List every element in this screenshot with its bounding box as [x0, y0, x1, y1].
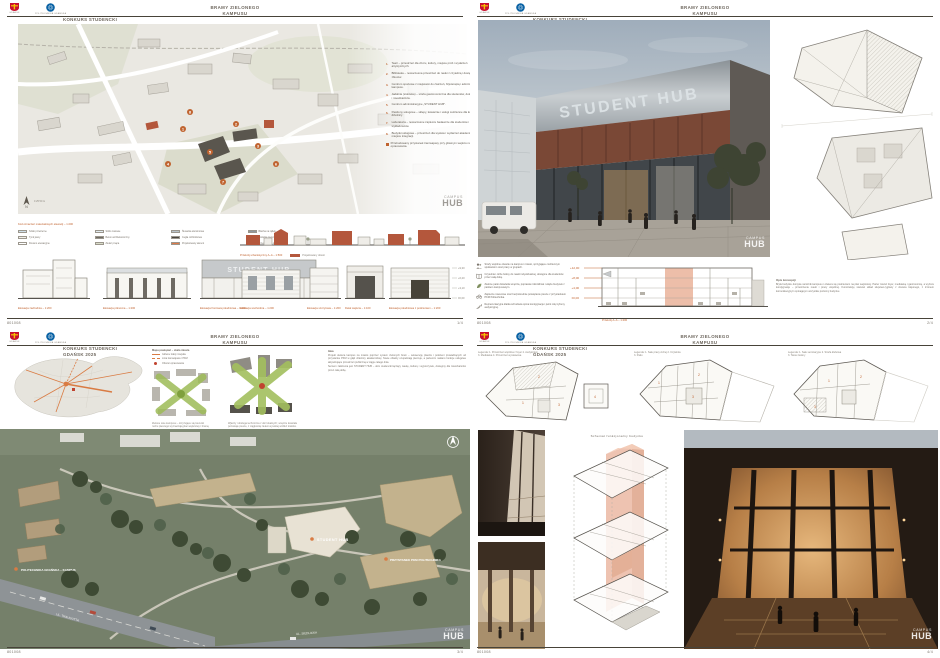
program-list: 1.Teatr – przestrzeń dla chóru, kultury,… [386, 62, 470, 152]
svg-text:N: N [25, 205, 28, 208]
politechnika-emblem-icon [46, 3, 55, 12]
north-arrow-icon: N [22, 196, 31, 208]
board-footer: 801008 4/4 [477, 647, 933, 656]
floor-plan-drawing: 1234 [478, 358, 628, 424]
board-1-masterplan: GDAŃSK POLITECHNIKA GDAŃSKA KONKURS STUD… [0, 0, 470, 329]
entry-code: 801008 [477, 321, 491, 325]
program-item: 5.Centrum administracyjne „STUDENT HUB”. [386, 103, 470, 107]
board-header: GDAŃSK POLITECHNIKA GDAŃSKA KONKURS STUD… [477, 2, 933, 17]
aerial-label-student-hub: STUDENT HUB [317, 538, 349, 542]
page-number: 2/4 [927, 321, 933, 325]
svg-text:±0,00: ±0,00 [572, 296, 580, 300]
svg-text:1: 1 [522, 401, 524, 405]
campus-hub-watermark: CAMPUS HUB [443, 629, 464, 641]
board-3-analyses-aerial: GDAŃSK POLITECHNIKA GDAŃSKA KONKURS STUD… [0, 329, 470, 658]
concept-annotations: Strefy wspólne otwarte na kampus i miast… [476, 263, 568, 312]
material-swatch [95, 236, 104, 239]
competition-boards-sheet: GDAŃSK POLITECHNIKA GDAŃSKA KONKURS STUD… [0, 0, 940, 658]
diagram-caption: Wjazdy i obsługa techniczna z ulic lokal… [228, 422, 300, 429]
annotation-item: Zielone patio doświetla wnętrza, poprawi… [476, 283, 568, 290]
board-footer: 801008 2/4 [477, 318, 933, 327]
van [482, 202, 536, 234]
elevation-gable: Elewacja szczytowa – 1:200 [307, 262, 341, 310]
aerial-render: STUDENT HUB PRZYSTANEK PKM POLITECHNIKA … [0, 429, 470, 649]
floor-plan-ground: Legenda: 1. Przestrzeń wspólna z foyer 2… [478, 351, 628, 437]
elevation-drawing [389, 262, 451, 302]
functional-scheme: Schemat funkcjonalny budynku [550, 430, 684, 649]
users-icon [476, 263, 482, 269]
siteplan-tools: N 0 25 50 m [22, 196, 45, 208]
board-title: BRAMY ZIELONEGOKAMPUSU [597, 334, 813, 346]
board-title: BRAMY ZIELONEGO KAMPUSU [127, 5, 343, 17]
material-swatch [171, 242, 180, 245]
campus-hub-watermark: CAMPUS HUB [442, 196, 463, 208]
floor-plan-level2: Legenda: 1. Sale seminaryjne 2. Strefa k… [788, 351, 938, 437]
circulation-drawing [228, 355, 296, 417]
material-swatch [18, 236, 27, 239]
floor-plan-drawing: 123 [634, 358, 784, 424]
material-swatch [171, 236, 180, 239]
politechnika-gdanska-logo: POLITECHNIKA GDAŃSKA [505, 3, 536, 15]
gdansk-crest-icon [9, 3, 20, 11]
politechnika-logo-label: POLITECHNIKA GDAŃSKA [35, 13, 66, 15]
interior-render-lobby [478, 542, 545, 649]
courtyard-render-image [684, 430, 938, 649]
svg-text:+4,00: +4,00 [572, 286, 580, 290]
board-footer: 801008 3/4 [7, 647, 463, 656]
city-connections-map [8, 350, 148, 429]
legend-item: Zieleń pnąca [95, 240, 166, 246]
hero-render: STUDENT HUB [478, 20, 770, 257]
gdansk-crest-icon [479, 332, 490, 340]
map-legend: Mapa powiązań – skala miasta Główne trak… [152, 349, 222, 365]
program-item-highlight: Przebudowany przystanek tramwajowy przy … [386, 142, 470, 149]
board-header: GDAŃSK POLITECHNIKA GDAŃSKA KONKURS STUD… [7, 2, 463, 17]
svg-text:+9,30: +9,30 [458, 266, 465, 270]
campus-hub-watermark: CAMPUS HUB [911, 629, 932, 641]
svg-text:1: 1 [828, 379, 830, 383]
program-item: 1.Teatr – przestrzeń dla chóru, kultury,… [386, 62, 470, 69]
building-section: +12,00 +8,00 +4,00 ±0,00 Przekrój A–A – … [570, 260, 768, 322]
section-legend-chip: Projektowany obiekt [290, 254, 324, 257]
legend-item: Drewno elewacyjne [18, 240, 89, 246]
elevation-drawing [18, 254, 90, 302]
idea-paragraph-1: Projekt otwiera kampus na miasto poprzez… [328, 354, 466, 364]
roof-plan [772, 18, 938, 260]
elevation-drawing [345, 262, 385, 302]
material-swatch [18, 230, 27, 233]
elevation-drawing [240, 262, 302, 302]
description-title: Opis koncepcji [776, 278, 934, 282]
aerial-label-pkm: PRZYSTANEK PKM POLITECHNIKA [390, 558, 442, 562]
legend-item: Projektowany akcent [171, 240, 242, 246]
idea-text-block: Idea Projekt otwiera kampus na miasto po… [328, 349, 466, 372]
leaf-icon [476, 283, 482, 289]
board-title: BRAMY ZIELONEGOKAMPUSU [597, 5, 813, 17]
politechnika-emblem-icon [516, 3, 525, 12]
gdansk-city-logo: GDAŃSK [479, 3, 490, 14]
svg-text:+6,20: +6,20 [458, 276, 465, 280]
annotation-item: Reprezentacyjna klatka schodowa spina ko… [476, 303, 568, 310]
politechnika-gdanska-logo: POLITECHNIKA GDAŃSKA [35, 332, 66, 344]
svg-text:+12,00: +12,00 [570, 266, 580, 270]
courtyard-render-dusk: CAMPUS HUB [684, 430, 938, 649]
city-map-drawing [8, 350, 148, 424]
circulation-diagram: Wjazdy i obsługa techniczna z ulic lokal… [228, 355, 300, 429]
page-number: 4/4 [927, 650, 933, 654]
site-plan: 1 2 3 4 5 6 7 8 1.Teatr – przestrzeń dla… [18, 24, 467, 214]
exploded-axonometric-drawing [550, 440, 684, 640]
svg-text:3: 3 [814, 405, 816, 409]
green-axes-drawing [152, 369, 210, 417]
elevation-east: Elewacja wschodnia – 1:200 [240, 262, 302, 310]
idea-title: Idea [328, 349, 466, 353]
stairs-icon [476, 303, 482, 309]
annotation-item: Strefy wspólne otwarte na kampus i miast… [476, 263, 568, 270]
annotation-item: Czytelnia i ciche boksy do nauki indywid… [476, 273, 568, 280]
program-item: 3.Centrum sportowe z miejscami do ćwicze… [386, 83, 470, 90]
elevation-south: Elewacja południowa z podcieniem – 1:200 [389, 262, 451, 310]
program-item: 2.Biblioteka – nowoczesna przestrzeń do … [386, 72, 470, 79]
map-legend-title: Mapa powiązań – skala miasta [152, 349, 222, 352]
svg-text:±0,00: ±0,00 [458, 296, 465, 300]
elevation-drawing [307, 262, 341, 302]
elevation-west: Elewacja zachodnia – 1:200 [18, 254, 90, 310]
map-legend-item: Linia tramwajowa / PKM [152, 357, 222, 360]
elevation-entry-detail: Detal wejścia – 1:100 [345, 262, 385, 310]
elevation-north: Elewacja północna – 1:200 [103, 254, 191, 310]
gdansk-city-logo: GDAŃSK [9, 332, 20, 343]
bike-icon [476, 293, 482, 299]
svg-text:+8,00: +8,00 [572, 276, 580, 280]
campus-hub-watermark: CAMPUS HUB [744, 237, 765, 249]
map-legend-item: Główne trakty miejskie [152, 353, 222, 356]
elevation-drawing [103, 254, 191, 302]
svg-text:3: 3 [692, 395, 694, 399]
interior-render-evening [478, 430, 545, 536]
floor-plan-drawing: 123 [788, 358, 938, 424]
aerial-label-politechnika: POLITECHNIKA GDAŃSKA – KAMPUS [21, 567, 76, 572]
material-swatch [18, 242, 27, 245]
page-number: 3/4 [457, 650, 463, 654]
gdansk-crest-icon [479, 3, 490, 11]
gdansk-city-logo: GDAŃSK [479, 332, 490, 343]
svg-text:1: 1 [658, 381, 660, 385]
map-legend-item: Obszar opracowania [152, 362, 222, 365]
floor-plan-level1: Legenda: 1. Sale pracy cichej 2. Czyteln… [634, 351, 784, 437]
program-item: 8.Budynki usługowe – przestrzeń dla wyst… [386, 132, 470, 139]
politechnika-gdanska-logo: POLITECHNIKA GDAŃSKA [505, 332, 536, 344]
functional-scheme-title: Schemat funkcjonalny budynku [550, 434, 684, 438]
svg-text:2: 2 [698, 373, 700, 377]
gdansk-logo-label: GDAŃSK [9, 12, 19, 14]
building-section-drawing: +12,00 +8,00 +4,00 ±0,00 [570, 260, 768, 314]
material-swatch [95, 230, 104, 233]
board-4-plans-interiors: GDAŃSK POLITECHNIKA GDAŃSKA KONKURS STUD… [470, 329, 940, 658]
board-footer: 801008 1/4 [7, 318, 463, 327]
aerial-render-image: STUDENT HUB PRZYSTANEK PKM POLITECHNIKA … [0, 429, 470, 649]
politechnika-emblem-icon [46, 332, 55, 341]
interior-render-image [478, 542, 545, 649]
dashed-line-swatch [152, 358, 160, 359]
svg-text:3: 3 [558, 403, 560, 407]
urban-section-drawing [240, 222, 465, 248]
board-header: GDAŃSK POLITECHNIKA GDAŃSKA KONKURS STUD… [7, 331, 463, 346]
svg-text:2: 2 [860, 375, 862, 379]
concept-description: Opis koncepcji Bryła budynku domyka naro… [776, 278, 934, 293]
urban-section-caption: Przekrój urbanistyczny A–A – 1:500 [240, 254, 282, 257]
hero-render-image: STUDENT HUB [478, 20, 770, 257]
svg-text:4: 4 [594, 395, 596, 399]
roof-plan-drawing [772, 18, 938, 260]
page-number: 1/4 [457, 321, 463, 325]
entry-code: 801008 [7, 650, 21, 654]
board-title: BRAMY ZIELONEGOKAMPUSU [127, 334, 343, 346]
description-body: Bryła budynku domyka narożnik kampusu i … [776, 283, 934, 293]
program-item: 4.Jadalnia (stołówka) – strefa gastronom… [386, 93, 470, 100]
interior-render-image [478, 430, 545, 536]
green-axes-diagram: Zielone osie kampusu – krzyżujące się ki… [152, 369, 210, 432]
urban-section: Przekrój urbanistyczny A–A – 1:500 Proje… [240, 222, 465, 257]
board-header: GDAŃSK POLITECHNIKA GDAŃSKA KONKURS STUD… [477, 331, 933, 346]
idea-paragraph-2: Sercem założenia jest STUDENT HUB – dom … [328, 365, 466, 372]
orange-square-bullet [386, 143, 389, 146]
annotation-item: Zaplecze rowerowe oraz bezpośrednie powi… [476, 293, 568, 300]
solid-line-swatch [152, 354, 160, 355]
politechnika-gdanska-logo: POLITECHNIKA GDAŃSKA [35, 3, 66, 15]
board-2-render-plan: GDAŃSK POLITECHNIKA GDAŃSKA KONKURS STUD… [470, 0, 940, 329]
level-marks: +9,30 +6,20 +3,10 ±0,00 [452, 262, 467, 309]
scalebar-label: 0 25 50 m [34, 200, 45, 203]
svg-text:+3,10: +3,10 [458, 286, 465, 290]
material-swatch [171, 230, 180, 233]
program-item: 6.Pawilony usługowe – sklepy, kawiarnie … [386, 111, 470, 118]
level-marks-drawing: +9,30 +6,20 +3,10 ±0,00 [452, 262, 467, 304]
program-item: 7.Laboratoria – nowoczesne zaplecze bada… [386, 121, 470, 128]
gdansk-city-logo: GDAŃSK [9, 3, 20, 14]
politechnika-emblem-icon [516, 332, 525, 341]
entry-code: 801008 [7, 321, 21, 325]
material-swatch [95, 242, 104, 245]
entry-code: 801008 [477, 650, 491, 654]
dot-swatch [154, 362, 157, 365]
svg-text:2: 2 [538, 375, 540, 379]
gdansk-crest-icon [9, 332, 20, 340]
proposed-building-swatch [290, 254, 300, 257]
book-icon [476, 273, 482, 279]
